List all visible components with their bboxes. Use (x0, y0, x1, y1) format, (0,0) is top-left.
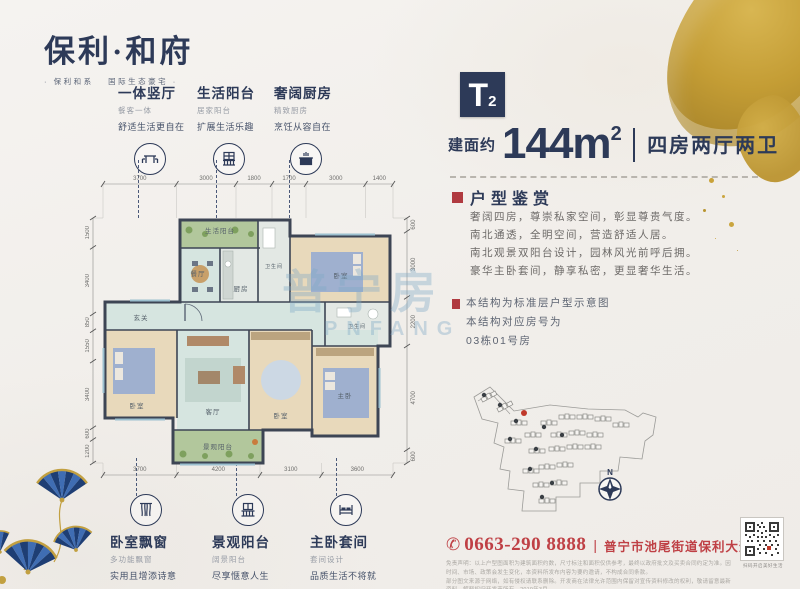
note-text: 本结构为标准层户型示意图 (466, 294, 610, 313)
room-label: 卧室 (334, 271, 349, 280)
gold-dots-decoration (709, 178, 714, 183)
callout-sub1: 阔景阳台 (212, 554, 298, 565)
dim-label: 3000 (329, 176, 343, 182)
unit-type-badge: T2 (460, 72, 505, 117)
view-balcony-icon (232, 494, 264, 526)
callout-sub1: 多功能飘窗 (110, 554, 196, 565)
qr-code (740, 517, 784, 561)
dashed-separator (450, 176, 758, 178)
dim-label: 600 (85, 428, 91, 439)
dim-label: 1400 (373, 176, 387, 182)
callout-sub1: 居家阳台 (197, 105, 283, 116)
dim-label: 3000 (199, 176, 213, 182)
unit-area-row: 建面约 144m2 四房两厅两卫 (448, 124, 779, 164)
appreciation-header: 户型鉴赏 (452, 185, 554, 209)
callout-sub2: 品质生活不将就 (310, 569, 396, 582)
appreciation-line: 奢阔四房，尊崇私家空间，彰显尊贵气度。 (470, 208, 698, 226)
dim-label: 3700 (133, 176, 147, 182)
qr-caption: 扫码开启美好生活 (736, 563, 790, 569)
area-superscript: 2 (611, 123, 621, 145)
room-label: 客厅 (206, 407, 221, 416)
room-label: 卧室 (130, 401, 145, 410)
phone-number: 0663-290 8888 (464, 534, 586, 556)
north-label: N (607, 468, 613, 477)
area-value: 144m2 (502, 124, 621, 164)
callout-sub2: 实用且增添诗意 (110, 569, 196, 582)
appreciation-line: 南北观景双阳台设计，园林风光前呼后拥。 (470, 244, 698, 262)
disclaimer: 免责声明：以上户型图面积为建筑面积约数，尺寸标注和面积仅供参考，最终以政府批文及… (446, 560, 734, 589)
site-building-markers (482, 393, 564, 499)
appreciation-title: 户型鉴赏 (470, 185, 554, 209)
appreciation-text: 奢阔四房，尊崇私家空间，彰显尊贵气度。 南北通透，全明空间，营造舒适人居。 南北… (470, 208, 698, 280)
room-label: 餐厅 (191, 269, 206, 278)
callout-sub1: 餐客一体 (118, 105, 204, 116)
floor-plan: 3700 3000 1800 1700 3000 1400 3700 4200 … (85, 168, 430, 520)
dim-label: 2200 (411, 314, 417, 328)
appreciation-line: 南北通透，全明空间，营造舒适人居。 (470, 226, 698, 244)
highlighted-building-marker (521, 410, 527, 416)
unit-type-sub: 2 (488, 93, 496, 110)
note-line-1: 本结构为标准层户型示意图 (452, 294, 610, 313)
dim-label: 3600 (351, 467, 365, 473)
dim-label: 1700 (282, 176, 296, 182)
callout-title: 一体竖厅 (118, 82, 204, 102)
callout-master-suite: 主卧套间 套间设计 品质生活不将就 (310, 494, 396, 582)
callout-title: 生活阳台 (197, 82, 283, 102)
red-square-bullet (452, 192, 463, 203)
disclaimer-line: 免责声明：以上户型图面积为建筑面积约数，尺寸标注和面积仅供参考，最终以政府批文及… (446, 560, 734, 578)
room-label: 厨房 (234, 284, 249, 293)
callout-title: 奢阔厨房 (274, 82, 360, 102)
room-label: 卫生间 (265, 263, 283, 270)
area-divider (633, 128, 636, 162)
dim-label: 1500 (85, 225, 91, 239)
dim-label: 1800 (247, 176, 261, 182)
callout-title: 卧室飘窗 (110, 531, 196, 551)
dim-label: 3400 (85, 387, 91, 401)
fan-decoration (0, 452, 112, 589)
brand-logo: 保利·和府 · 保利和系 国际生态豪宅 · (44, 26, 193, 87)
callout-sub2: 烹饪从容自在 (274, 120, 360, 133)
unit-layout: 四房两厅两卫 (647, 129, 779, 158)
poster: 保利·和府 · 保利和系 国际生态豪宅 · 一体竖厅 餐客一体 舒适生活更自在 … (0, 0, 800, 589)
note-line-3: 03栋01号房 (452, 332, 610, 351)
dim-label: 850 (85, 317, 91, 328)
disclaimer-line: 部分图文来源于网络，如有侵权请联系删除。开发商在法律允许范围内保留对宣传资料修改… (446, 578, 734, 589)
site-plan: N (460, 383, 745, 528)
callout-sub2: 尽享惬意人生 (212, 569, 298, 582)
dim-label: 4700 (411, 390, 417, 404)
callout-life-balcony: 生活阳台 居家阳台 扩展生活乐趣 (197, 82, 283, 175)
callout-view-balcony: 景观阳台 阔景阳台 尽享惬意人生 (212, 494, 298, 582)
room-label: 玄关 (134, 313, 149, 322)
contact-divider: | (593, 537, 597, 553)
structure-note: 本结构为标准层户型示意图 本结构对应房号为 03栋01号房 (452, 294, 610, 351)
dim-label: 3100 (284, 467, 298, 473)
room-label: 卫生间 (348, 323, 366, 330)
appreciation-line: 豪华主卧套间，静享私密，更显奢华生活。 (470, 262, 698, 280)
bed-icon (330, 494, 362, 526)
dim-label: 4200 (212, 467, 226, 473)
room-label: 卧室 (274, 411, 289, 420)
unit-type-letter: T (469, 79, 489, 111)
callout-sub1: 套间设计 (310, 554, 396, 565)
red-square-bullet-small (452, 299, 460, 309)
dim-label: 600 (411, 219, 417, 230)
callout-sub2: 舒适生活更自在 (118, 120, 204, 133)
area-prefix: 建面约 (448, 134, 496, 155)
qr-pattern (743, 520, 781, 558)
callout-kitchen: 奢阔厨房 精致厨房 烹饪从容自在 (274, 82, 360, 175)
callout-sub1: 精致厨房 (274, 105, 360, 116)
bay-window-icon (130, 494, 162, 526)
dim-label: 3000 (411, 257, 417, 271)
room-label: 生活阳台 (205, 226, 235, 235)
dim-label: 600 (411, 451, 417, 462)
contact-row: ✆ 0663-290 8888 | 普宁市池尾街道保利大道1号 (446, 534, 774, 556)
room-label: 景观阳台 (203, 442, 233, 451)
phone-icon: ✆ (446, 535, 460, 555)
compass: N (599, 468, 621, 500)
dim-label: 1550 (85, 339, 91, 353)
callout-sub2: 扩展生活乐趣 (197, 120, 283, 133)
dim-label: 3700 (133, 467, 147, 473)
note-line-2: 本结构对应房号为 (452, 313, 610, 332)
callout-bay-window: 卧室飘窗 多功能飘窗 实用且增添诗意 (110, 494, 196, 582)
brand-title: 保利·和府 (44, 26, 193, 71)
dim-label: 3400 (85, 273, 91, 287)
callout-title: 主卧套间 (310, 531, 396, 551)
room-label: 主卧 (338, 391, 353, 400)
callout-vertical-hall: 一体竖厅 餐客一体 舒适生活更自在 (118, 82, 204, 175)
callout-title: 景观阳台 (212, 531, 298, 551)
